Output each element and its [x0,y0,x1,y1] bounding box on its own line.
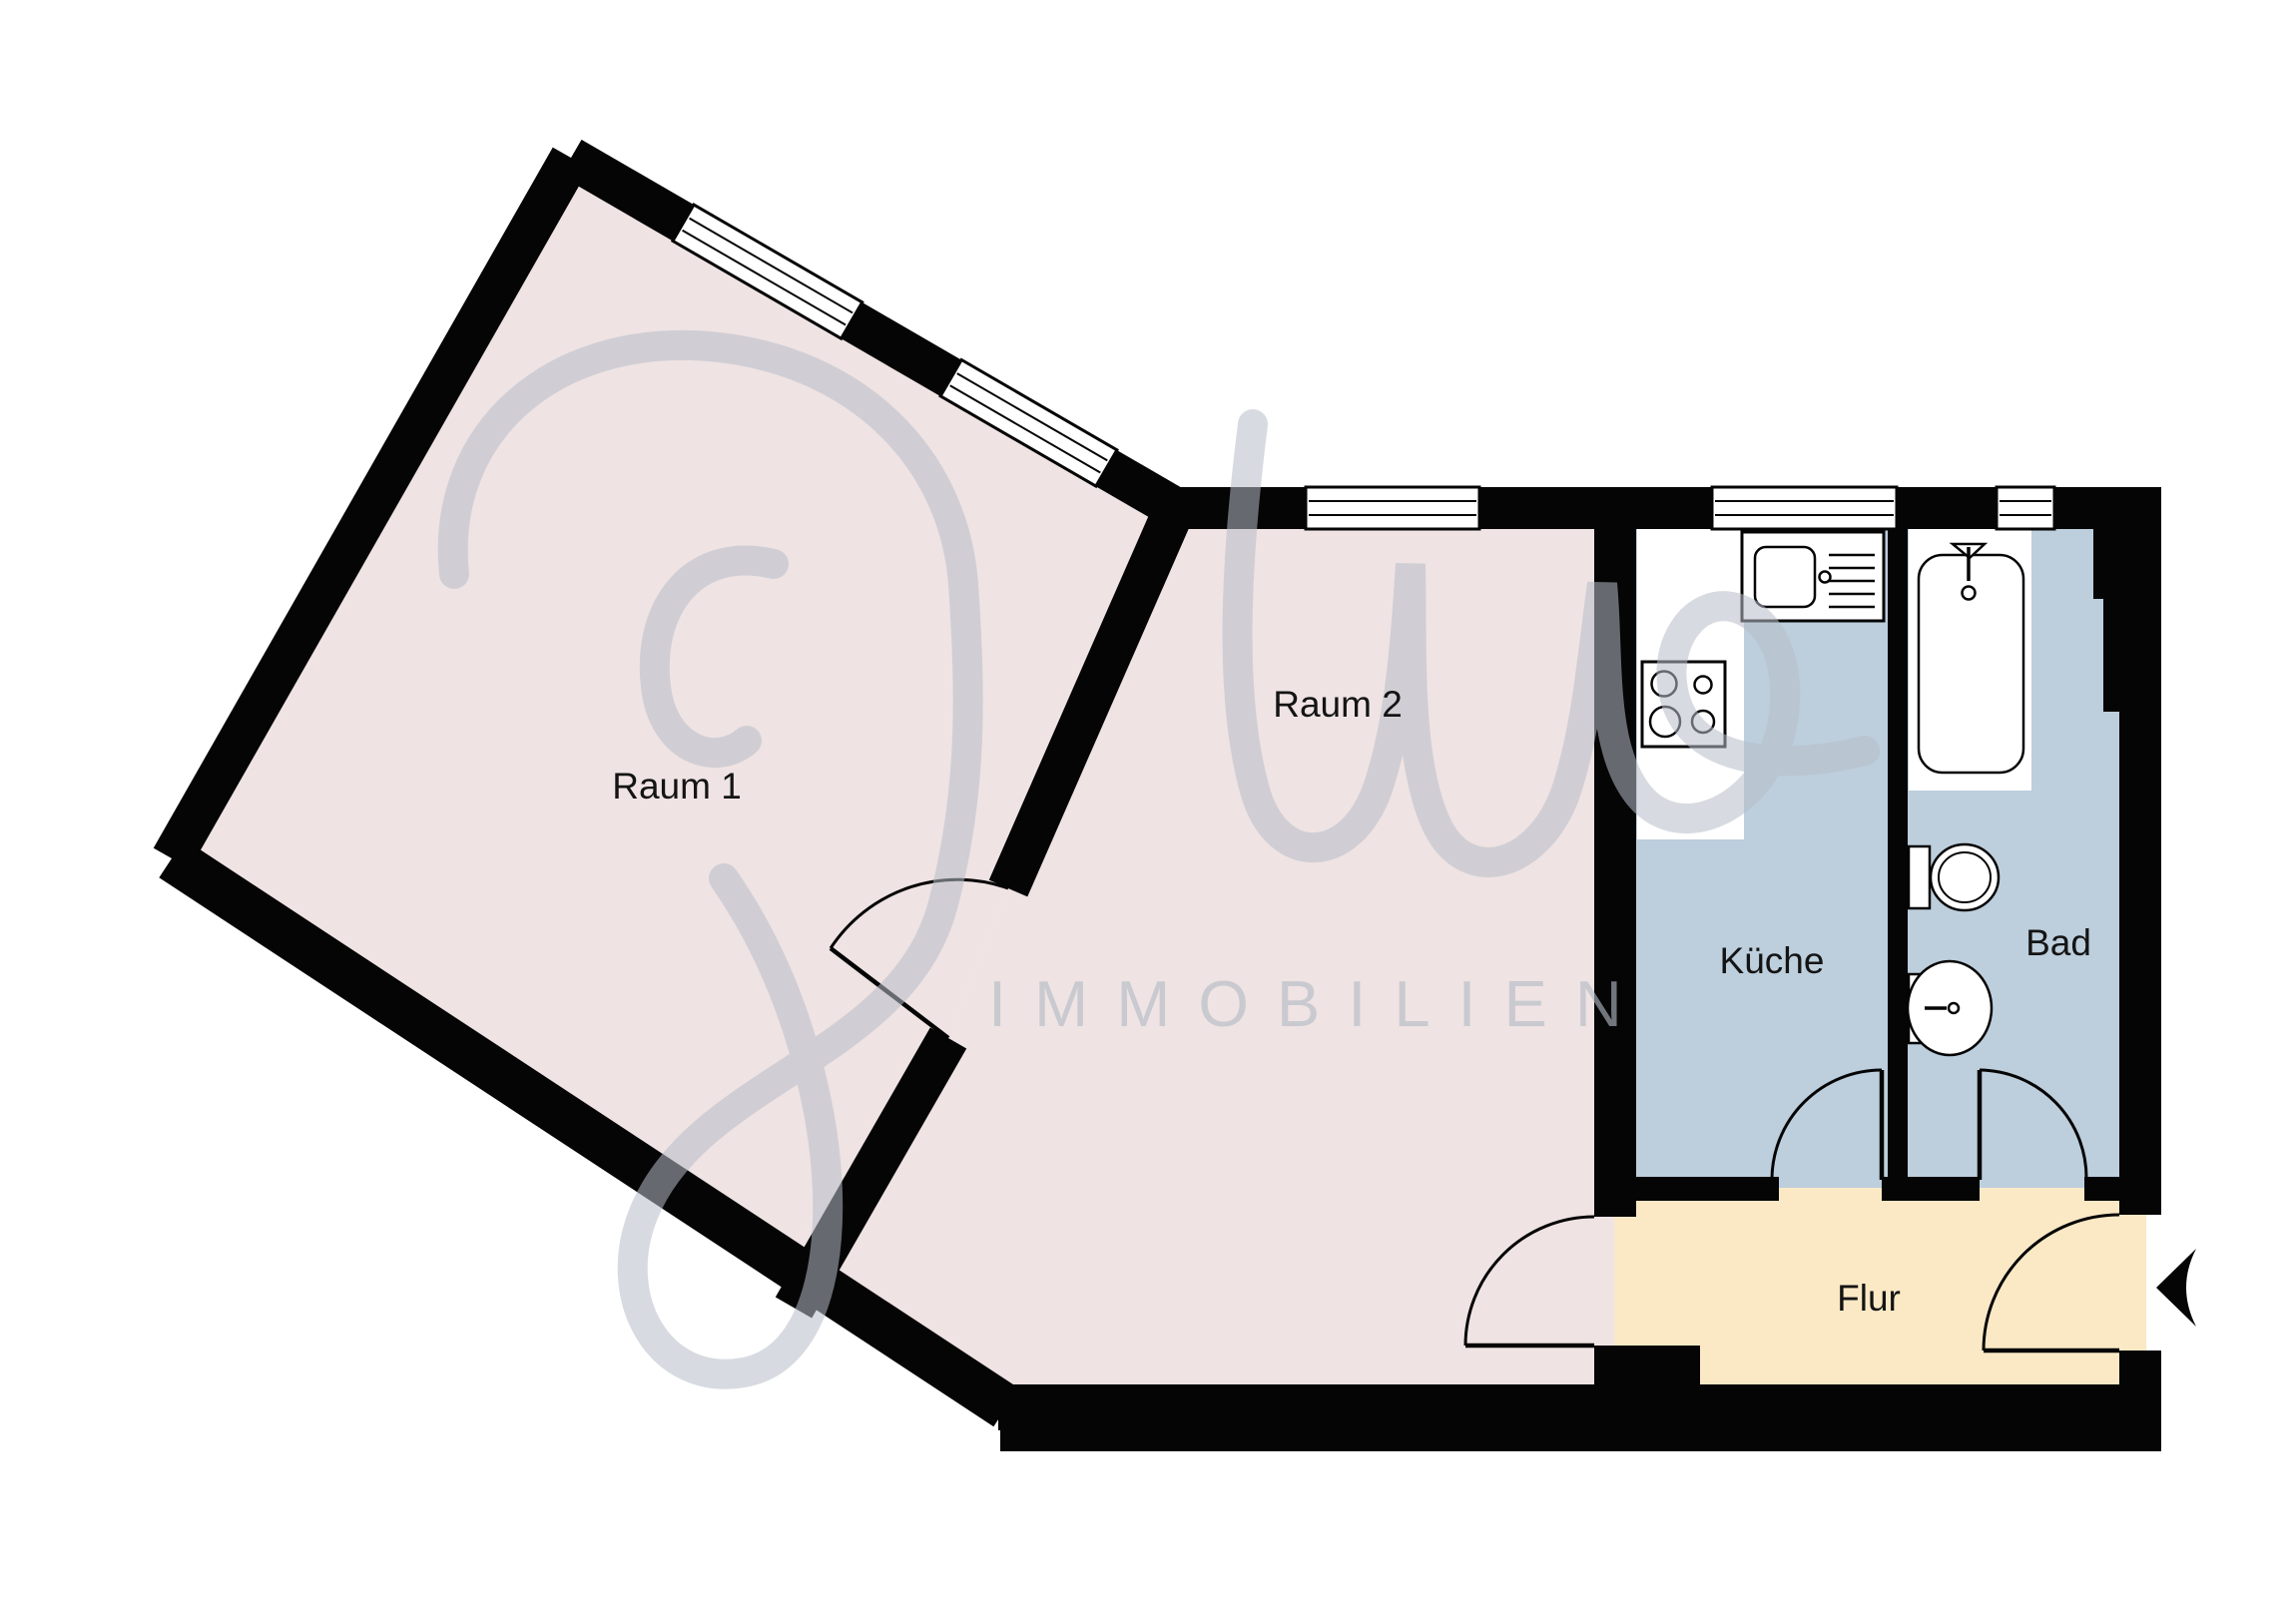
sink-faucet-icon [1820,572,1831,583]
floorplan-page: IMMOBILIEN Raum 1 Raum 2 Küche Bad Flur [0,0,2296,1623]
label-flur: Flur [1837,1278,1901,1319]
bad-niche-step-1 [2093,508,2120,599]
flur-door-stub [1614,1346,1700,1389]
washbasin-icon [1908,961,1992,1055]
label-kueche: Küche [1720,940,1825,981]
bottom-outer-strip [1000,1425,2161,1451]
raum2-window [1306,487,1479,529]
bad-niche-step-2 [2103,599,2120,712]
toilet-icon [1909,844,1999,910]
floorplan-svg: IMMOBILIEN Raum 1 Raum 2 Küche Bad Flur [0,0,2296,1623]
label-bad: Bad [2025,922,2091,963]
watermark-caps: IMMOBILIEN [988,967,1650,1040]
kueche-window [1712,487,1897,529]
bad-window [1997,487,2054,529]
entrance-arrow-icon [2156,1249,2196,1327]
label-raum2: Raum 2 [1273,684,1403,725]
label-raum1: Raum 1 [612,766,742,807]
bathtub-icon [1919,544,2023,773]
